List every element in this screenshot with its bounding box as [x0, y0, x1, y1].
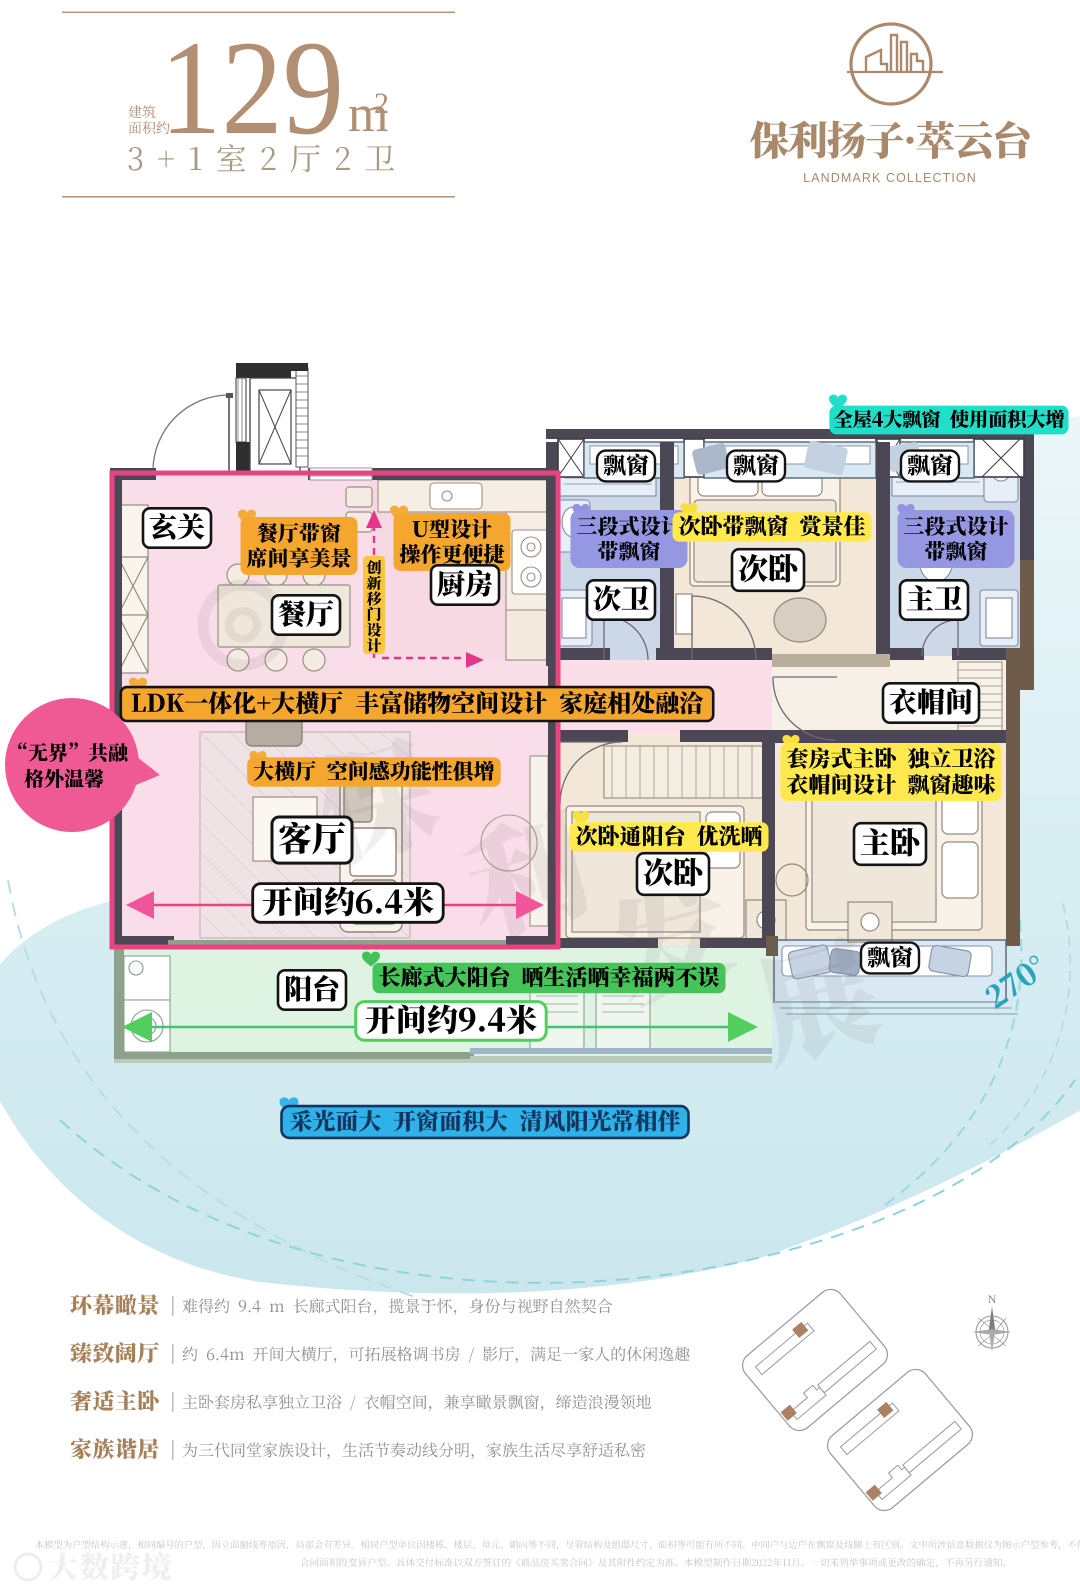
- svg-text:129: 129: [160, 14, 344, 163]
- svg-text:N: N: [988, 1292, 997, 1306]
- svg-text:LANDMARK COLLECTION: LANDMARK COLLECTION: [803, 171, 977, 185]
- svg-text:2: 2: [374, 87, 389, 120]
